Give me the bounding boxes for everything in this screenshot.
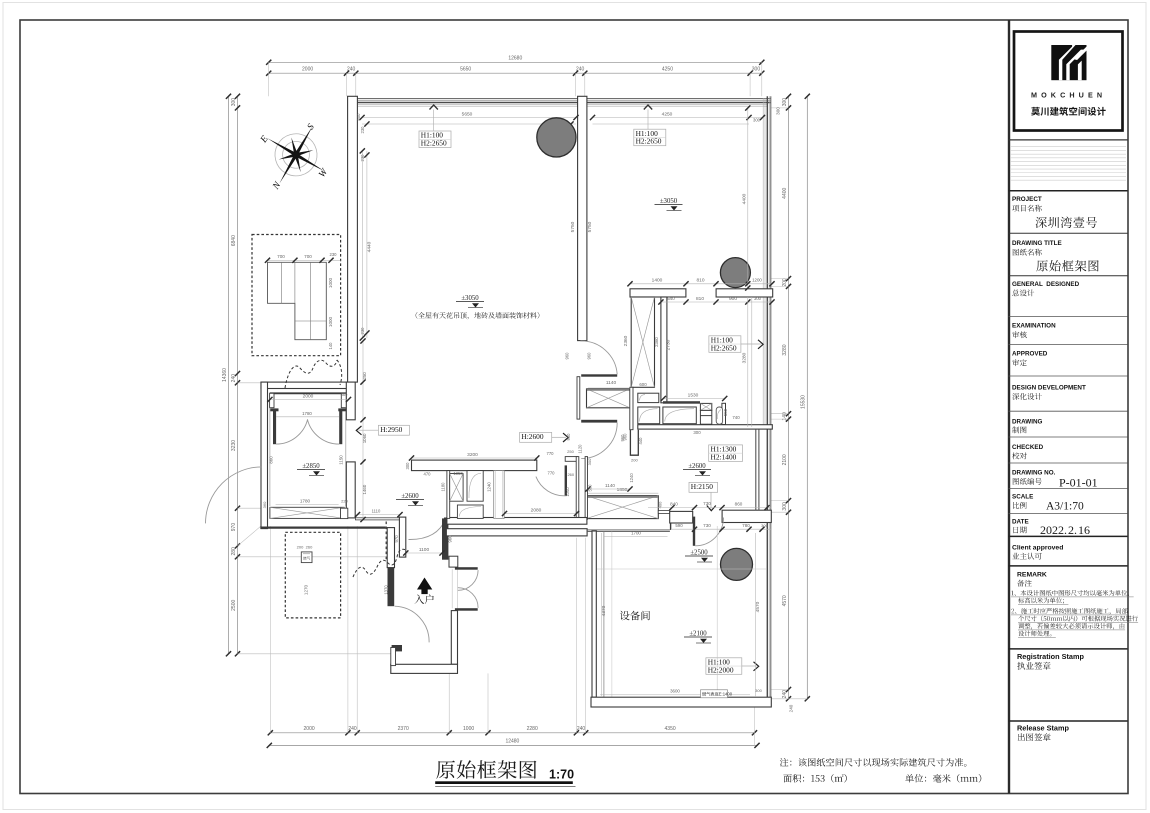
svg-text:970: 970	[231, 523, 237, 532]
svg-text:燃气: 燃气	[303, 556, 311, 561]
svg-text:DRAWING TITLE: DRAWING TITLE	[1012, 240, 1062, 247]
svg-text:H2:2650: H2:2650	[636, 137, 662, 146]
svg-text:1350: 1350	[453, 471, 463, 476]
svg-text:960: 960	[565, 352, 570, 360]
svg-text:220: 220	[341, 499, 348, 504]
svg-text:700: 700	[304, 254, 312, 259]
svg-text:590: 590	[675, 523, 683, 528]
svg-text:1270: 1270	[304, 584, 309, 595]
svg-text:300: 300	[693, 430, 701, 435]
svg-text:Registration Stamp: Registration Stamp	[1017, 652, 1084, 661]
svg-text:1460: 1460	[362, 484, 367, 494]
svg-text:H:2150: H:2150	[691, 482, 713, 491]
svg-text:1120: 1120	[578, 444, 583, 454]
svg-text:1240: 1240	[629, 473, 634, 483]
svg-text:PROJECT: PROJECT	[1012, 196, 1042, 203]
svg-text:2500: 2500	[231, 600, 237, 611]
svg-text:780: 780	[742, 523, 750, 528]
svg-text:810: 810	[696, 296, 704, 302]
svg-text:4570: 4570	[755, 601, 761, 612]
svg-text:2370: 2370	[398, 726, 409, 732]
svg-text:4370: 4370	[601, 605, 607, 616]
svg-text:1110: 1110	[372, 508, 381, 513]
svg-text:700: 700	[277, 254, 285, 259]
svg-text:900: 900	[729, 296, 737, 302]
svg-text:300: 300	[405, 462, 410, 470]
svg-text:360: 360	[262, 501, 267, 508]
svg-text:300: 300	[782, 502, 788, 511]
svg-text:200: 200	[631, 458, 638, 463]
svg-text:1200: 1200	[752, 278, 762, 283]
svg-text:4570: 4570	[782, 595, 788, 606]
svg-text:550: 550	[723, 408, 728, 416]
svg-text:4350: 4350	[665, 726, 676, 732]
svg-text:200: 200	[782, 278, 788, 287]
svg-text:EXAMINATION: EXAMINATION	[1012, 323, 1056, 330]
svg-text:1700: 1700	[631, 530, 641, 535]
svg-text:840: 840	[670, 502, 678, 507]
svg-text:1530: 1530	[688, 393, 699, 399]
svg-text:260: 260	[567, 472, 574, 477]
svg-text:240: 240	[576, 67, 585, 73]
svg-text:2360: 2360	[623, 335, 629, 346]
svg-text:2730: 2730	[666, 339, 672, 350]
svg-text:±2600: ±2600	[688, 463, 706, 470]
svg-text:540: 540	[667, 296, 675, 301]
svg-text:230: 230	[360, 126, 365, 134]
svg-text:300: 300	[753, 118, 761, 123]
svg-text:300: 300	[782, 98, 788, 107]
svg-text:A3/1:70: A3/1:70	[1046, 501, 1084, 513]
svg-text:4250: 4250	[662, 112, 673, 118]
svg-text:240: 240	[577, 726, 586, 732]
svg-text:1000: 1000	[328, 277, 333, 288]
svg-text:3200: 3200	[467, 452, 478, 458]
svg-text:1180: 1180	[441, 482, 446, 492]
svg-text:960: 960	[587, 352, 592, 360]
svg-text:5650: 5650	[460, 67, 471, 73]
svg-text:260: 260	[306, 545, 313, 550]
svg-text:240: 240	[347, 67, 356, 73]
svg-text:860: 860	[735, 502, 743, 507]
svg-text:APPROVED: APPROVED	[1012, 351, 1048, 358]
svg-text:730: 730	[703, 523, 711, 528]
svg-text:1780: 1780	[302, 411, 312, 416]
svg-text:240: 240	[782, 690, 788, 699]
svg-text:3600: 3600	[670, 688, 680, 693]
svg-text:Release Stamp: Release Stamp	[1017, 723, 1069, 732]
svg-text:300: 300	[231, 98, 237, 107]
svg-text:12480: 12480	[505, 739, 519, 745]
svg-text:4440: 4440	[367, 241, 373, 252]
svg-text:440: 440	[638, 437, 643, 445]
svg-text:2000: 2000	[302, 67, 313, 73]
svg-text:2022. 2. 16: 2022. 2. 16	[1040, 523, 1090, 537]
svg-text:300: 300	[752, 67, 761, 73]
svg-text:300: 300	[587, 458, 592, 465]
svg-text:500: 500	[588, 484, 593, 492]
svg-text:240: 240	[231, 374, 237, 383]
svg-text:CHECKED: CHECKED	[1012, 444, 1044, 451]
svg-text:2280: 2280	[527, 726, 538, 732]
svg-text:GENERAL DESIGNED: GENERAL DESIGNED	[1012, 281, 1080, 288]
svg-text:1780: 1780	[300, 499, 311, 504]
svg-text:300: 300	[754, 296, 762, 301]
svg-text:2100: 2100	[782, 454, 788, 465]
svg-text:±3050: ±3050	[461, 295, 479, 302]
svg-text:H:2950: H:2950	[380, 425, 402, 434]
svg-text:4400: 4400	[741, 193, 747, 204]
svg-text:3230: 3230	[231, 440, 237, 451]
svg-text:1150: 1150	[339, 455, 344, 465]
svg-text:±2850: ±2850	[302, 463, 320, 470]
svg-text:230: 230	[330, 252, 338, 257]
svg-text:140: 140	[328, 342, 333, 350]
svg-text:H2:2000: H2:2000	[708, 665, 734, 674]
svg-text:250: 250	[362, 372, 367, 380]
svg-text:730: 730	[703, 501, 711, 506]
svg-text:1000: 1000	[463, 726, 474, 732]
svg-text:770: 770	[548, 471, 556, 476]
svg-text:1:70: 1:70	[549, 767, 574, 781]
svg-text:DRAWING NO.: DRAWING NO.	[1012, 470, 1056, 477]
svg-text:300: 300	[755, 688, 762, 693]
svg-text:230: 230	[360, 327, 365, 335]
svg-text:P-01-01: P-01-01	[1059, 476, 1098, 490]
svg-text:600: 600	[639, 382, 647, 387]
svg-text:±2600: ±2600	[401, 493, 419, 500]
svg-text:300: 300	[761, 523, 768, 528]
svg-text:970: 970	[394, 535, 399, 543]
svg-text:240: 240	[789, 704, 794, 712]
svg-text:1400: 1400	[652, 278, 663, 284]
svg-text:DRAWING: DRAWING	[1012, 419, 1043, 426]
svg-text:740: 740	[732, 415, 740, 420]
svg-text:2000: 2000	[303, 394, 314, 400]
svg-text:DATE: DATE	[1012, 519, 1029, 526]
svg-text:960: 960	[623, 433, 628, 441]
svg-text:360: 360	[341, 392, 348, 397]
svg-text:4250: 4250	[662, 67, 673, 73]
svg-text:400: 400	[658, 501, 663, 508]
svg-text:1240: 1240	[487, 482, 492, 492]
svg-text:770: 770	[547, 451, 555, 456]
svg-text:5650: 5650	[462, 112, 473, 118]
svg-text:250: 250	[567, 449, 574, 454]
svg-text:2000: 2000	[304, 726, 315, 732]
svg-text:14360: 14360	[222, 368, 228, 382]
svg-text:4400: 4400	[782, 187, 788, 198]
svg-text:810: 810	[696, 278, 704, 284]
svg-text:1040: 1040	[565, 487, 570, 497]
svg-text:H:2600: H:2600	[521, 432, 543, 441]
svg-text:H2:1400: H2:1400	[711, 452, 737, 461]
svg-text:860: 860	[269, 456, 274, 464]
svg-text:MOKCHUEN: MOKCHUEN	[1031, 90, 1106, 99]
svg-text:1100: 1100	[419, 547, 430, 553]
svg-text:12680: 12680	[508, 56, 522, 62]
svg-text:5750: 5750	[587, 221, 593, 232]
svg-text:15530: 15530	[801, 395, 807, 409]
svg-text:2360: 2360	[654, 337, 659, 347]
svg-text:燃气表底E:1400: 燃气表底E:1400	[702, 691, 733, 698]
svg-text:H2:2650: H2:2650	[421, 139, 447, 148]
svg-text:1140: 1140	[606, 380, 617, 386]
svg-text:±2100: ±2100	[689, 631, 707, 638]
svg-text:1370: 1370	[384, 585, 389, 595]
svg-text:1850: 1850	[617, 487, 628, 493]
svg-text:280: 280	[231, 547, 237, 556]
svg-text:230: 230	[360, 154, 365, 162]
svg-text:1060: 1060	[362, 433, 367, 443]
svg-text:REMARK: REMARK	[1017, 572, 1047, 579]
svg-text:240: 240	[348, 726, 357, 732]
svg-text:5750: 5750	[570, 221, 576, 232]
svg-text:±2500: ±2500	[690, 550, 708, 557]
svg-text:H2:2650: H2:2650	[711, 343, 737, 352]
svg-text:2080: 2080	[531, 507, 542, 513]
svg-text:200: 200	[297, 545, 304, 550]
svg-text:SCALE: SCALE	[1012, 494, 1033, 501]
svg-text:600: 600	[356, 113, 361, 121]
svg-text:6840: 6840	[231, 235, 237, 246]
svg-text:1000: 1000	[328, 316, 333, 327]
svg-text:960: 960	[448, 535, 453, 543]
svg-text:300: 300	[776, 107, 781, 115]
svg-text:3280: 3280	[782, 344, 788, 355]
svg-text:3280: 3280	[741, 352, 747, 363]
svg-text:±3050: ±3050	[660, 198, 678, 205]
svg-text:470: 470	[424, 471, 432, 476]
svg-text:1140: 1140	[605, 483, 615, 488]
svg-text:960: 960	[566, 433, 571, 441]
svg-text:DESIGN DEVELOPMENT: DESIGN DEVELOPMENT	[1012, 385, 1086, 392]
svg-text:Client approved: Client approved	[1012, 544, 1063, 551]
